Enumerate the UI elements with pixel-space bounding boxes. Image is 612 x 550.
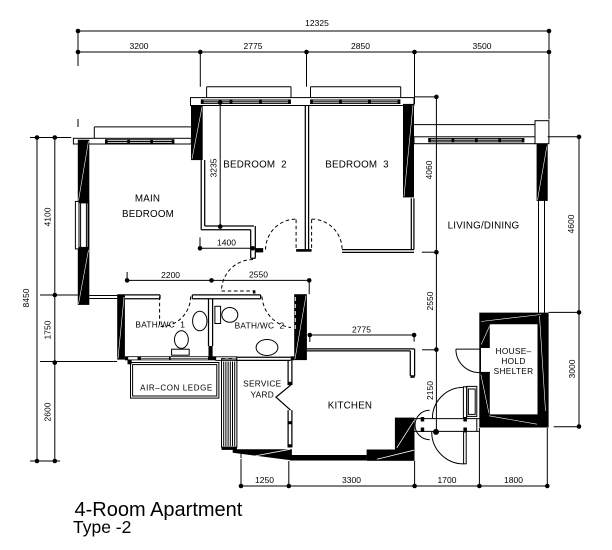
svg-text:Type -2: Type -2 [73,517,131,537]
svg-text:HOLD: HOLD [501,356,525,366]
svg-text:2850: 2850 [351,41,370,51]
svg-text:2200: 2200 [161,270,180,280]
svg-text:2775: 2775 [244,41,263,51]
svg-text:BATH/WC 1: BATH/WC 1 [135,319,185,329]
svg-text:3300: 3300 [342,475,361,485]
svg-text:2550: 2550 [425,291,435,310]
svg-text:2550: 2550 [249,270,268,280]
svg-text:YARD: YARD [250,390,274,400]
svg-text:1800: 1800 [504,475,523,485]
svg-text:1750: 1750 [43,320,53,339]
svg-text:SHELTER: SHELTER [494,366,534,376]
svg-text:1700: 1700 [438,475,457,485]
svg-text:SERVICE: SERVICE [243,379,282,389]
svg-text:LIVING/DINING: LIVING/DINING [448,220,520,231]
svg-text:BATH/WC 2: BATH/WC 2 [235,321,285,331]
svg-text:1250: 1250 [255,475,274,485]
svg-text:3500: 3500 [473,41,492,51]
svg-text:8450: 8450 [21,288,31,307]
svg-text:2600: 2600 [43,402,53,421]
svg-text:2775: 2775 [352,324,371,334]
svg-text:4600: 4600 [566,214,576,233]
svg-text:3000: 3000 [567,359,577,378]
svg-text:1400: 1400 [217,238,236,248]
svg-text:HOUSE–: HOUSE– [496,346,532,356]
svg-text:BEDROOM 3: BEDROOM 3 [325,159,389,170]
svg-text:KITCHEN: KITCHEN [328,401,372,412]
svg-text:4100: 4100 [43,207,53,226]
svg-text:MAIN: MAIN [135,194,160,205]
svg-text:2150: 2150 [425,381,435,400]
svg-text:BEDROOM: BEDROOM [122,209,174,220]
svg-text:BEDROOM 2: BEDROOM 2 [223,159,287,170]
svg-text:3235: 3235 [208,158,218,177]
svg-text:AIR–CON LEDGE: AIR–CON LEDGE [140,384,213,393]
svg-text:4060: 4060 [424,160,434,179]
svg-text:12325: 12325 [305,18,329,28]
svg-text:3200: 3200 [130,41,149,51]
